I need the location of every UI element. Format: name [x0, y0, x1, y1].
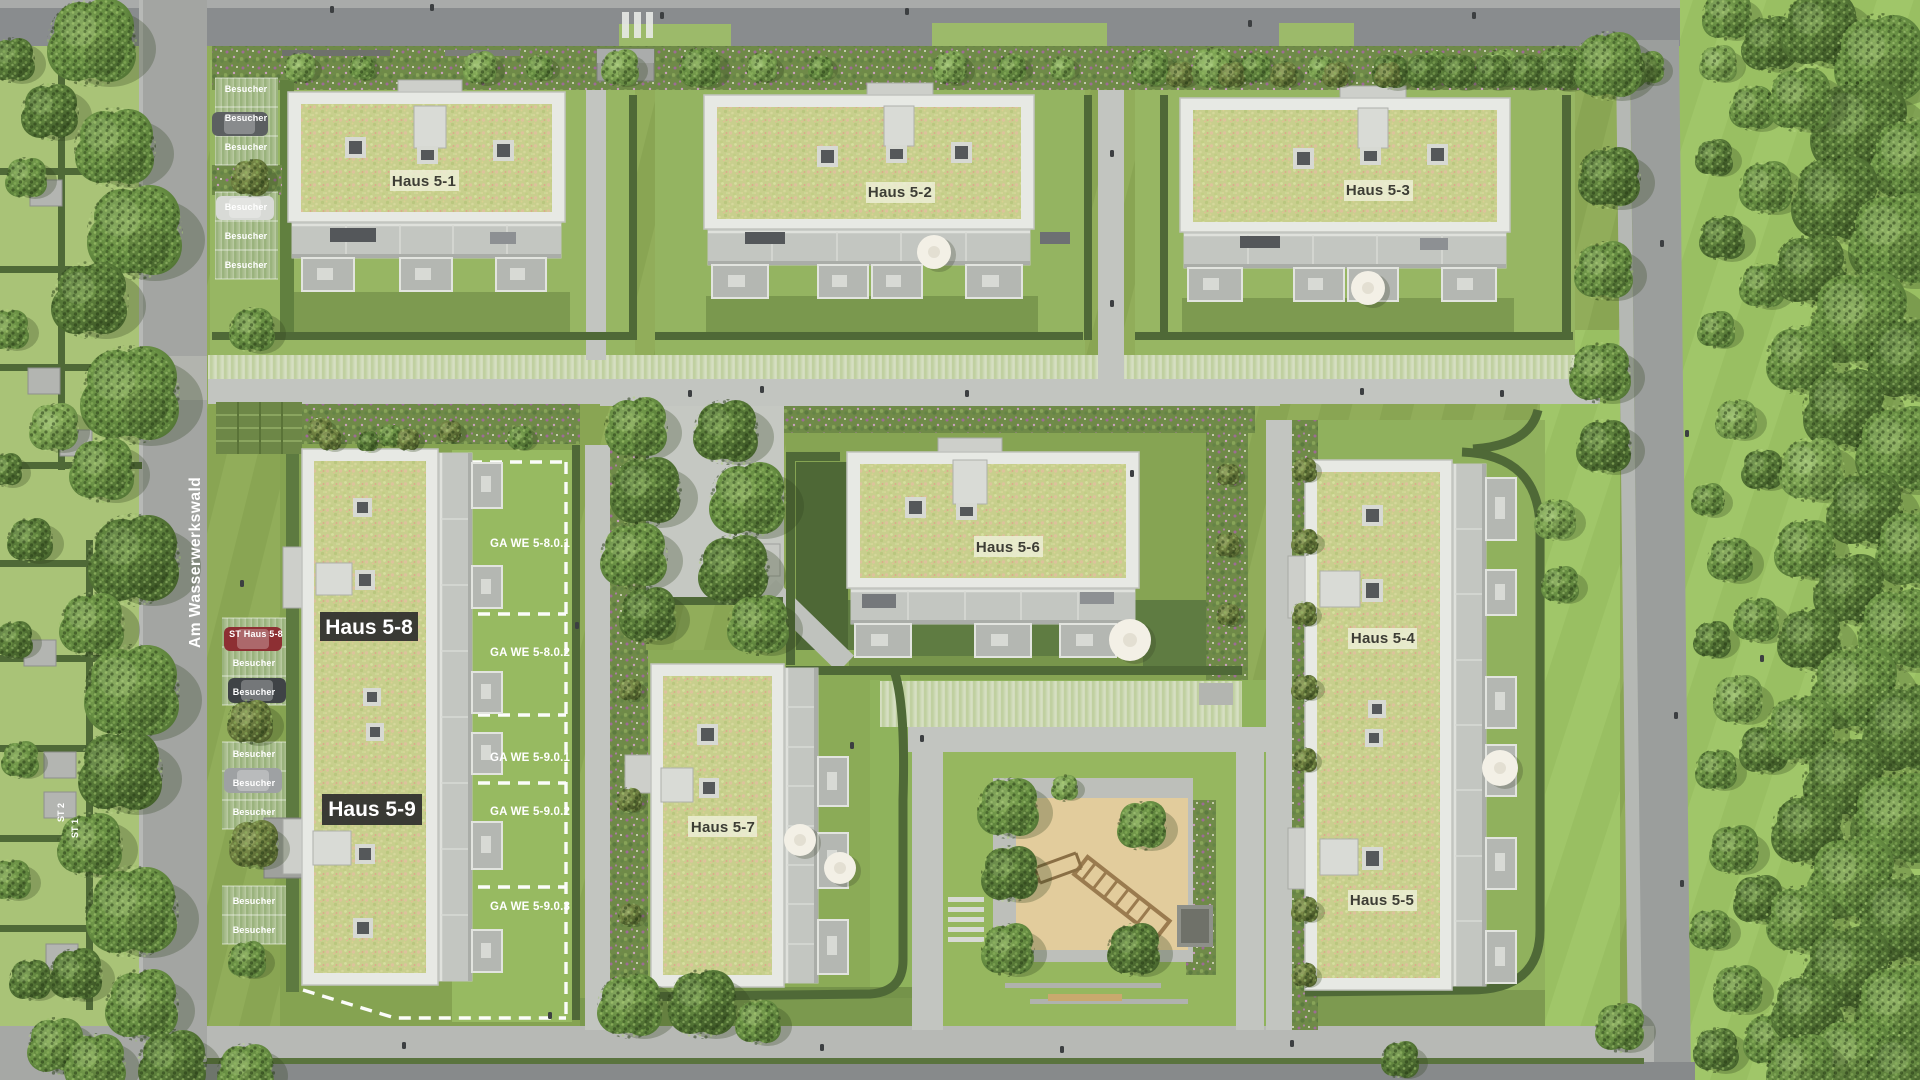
svg-text:ST 1: ST 1 [70, 819, 80, 838]
svg-text:Am Wasserwerkswald: Am Wasserwerkswald [187, 477, 204, 648]
svg-text:Besucher: Besucher [225, 84, 268, 94]
svg-text:GA WE 5-9.0.3: GA WE 5-9.0.3 [490, 901, 570, 913]
svg-text:Haus 5-6: Haus 5-6 [976, 539, 1040, 556]
svg-text:Haus 5-4: Haus 5-4 [1351, 630, 1416, 647]
svg-text:Besucher: Besucher [233, 778, 276, 788]
svg-text:Haus 5-2: Haus 5-2 [868, 184, 932, 201]
svg-text:Haus 5-1: Haus 5-1 [392, 173, 456, 190]
svg-text:Besucher: Besucher [225, 260, 268, 270]
svg-text:GA WE 5-8.0.2: GA WE 5-8.0.2 [490, 647, 570, 659]
svg-text:GA WE 5-9.0.2: GA WE 5-9.0.2 [490, 806, 570, 818]
svg-text:Haus 5-7: Haus 5-7 [691, 819, 755, 836]
svg-text:ST Haus 5-8: ST Haus 5-8 [229, 629, 283, 639]
svg-text:Besucher: Besucher [233, 896, 276, 906]
svg-text:Haus 5-8: Haus 5-8 [325, 616, 413, 639]
svg-text:Besucher: Besucher [225, 142, 268, 152]
svg-text:GA WE 5-9.0.1: GA WE 5-9.0.1 [490, 752, 571, 764]
svg-text:Besucher: Besucher [225, 202, 268, 212]
svg-text:Besucher: Besucher [233, 749, 276, 759]
svg-text:Besucher: Besucher [233, 658, 276, 668]
svg-text:Besucher: Besucher [225, 231, 268, 241]
svg-text:ST 2: ST 2 [56, 803, 66, 822]
svg-text:Besucher: Besucher [233, 925, 276, 935]
svg-text:GA WE 5-8.0.1: GA WE 5-8.0.1 [490, 538, 571, 550]
svg-text:Haus 5-9: Haus 5-9 [328, 798, 416, 821]
svg-text:Haus 5-3: Haus 5-3 [1346, 182, 1410, 199]
svg-text:Besucher: Besucher [225, 113, 268, 123]
svg-text:Haus 5-5: Haus 5-5 [1350, 892, 1414, 909]
svg-text:Besucher: Besucher [233, 687, 276, 697]
svg-text:Besucher: Besucher [233, 807, 276, 817]
